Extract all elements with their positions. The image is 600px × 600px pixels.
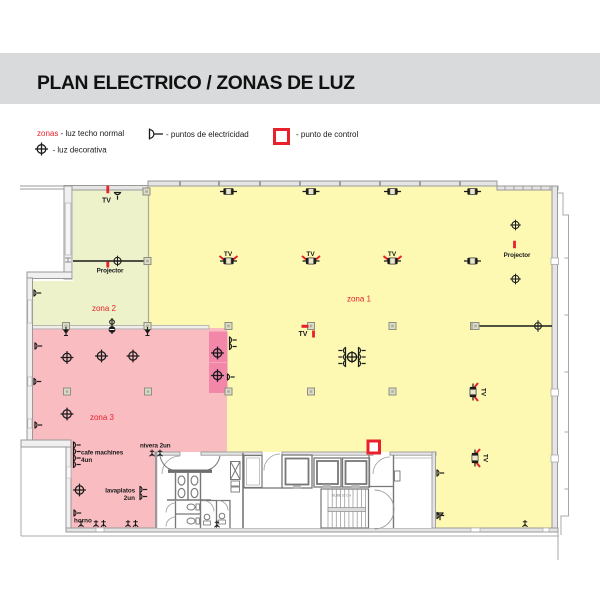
svg-text:TV: TV [480,388,487,397]
svg-text:nivera 2un: nivera 2un [140,443,171,450]
svg-text:4un: 4un [81,457,92,464]
svg-text:horno: horno [74,518,92,525]
svg-text:TV: TV [306,251,315,258]
svg-text:TV: TV [224,251,233,258]
svg-text:- punto de control: - punto de control [296,130,358,139]
svg-text:TV: TV [299,331,308,338]
svg-text:Projector: Projector [504,252,531,259]
svg-text:zonas - luz techo normal: zonas - luz techo normal [37,129,124,138]
svg-text:zona 2: zona 2 [92,304,117,313]
svg-text:2un: 2un [124,495,135,502]
svg-text:SUBE 16 CH: SUBE 16 CH [332,494,351,498]
svg-text:zona 1: zona 1 [347,295,372,304]
svg-text:TV: TV [388,251,397,258]
svg-text:TV: TV [482,454,489,463]
svg-text:zona 3: zona 3 [90,413,115,422]
svg-text:PLAN ELECTRICO / ZONAS DE LUZ: PLAN ELECTRICO / ZONAS DE LUZ [37,73,355,94]
svg-text:- luz decorativa: - luz decorativa [53,146,108,155]
svg-text:lavaplatos: lavaplatos [105,488,135,495]
svg-text:TV: TV [102,198,111,205]
svg-text:- puntos de electricidad: - puntos de electricidad [166,130,249,139]
svg-text:Projector: Projector [97,268,124,275]
svg-text:cafe machines: cafe machines [81,450,124,457]
